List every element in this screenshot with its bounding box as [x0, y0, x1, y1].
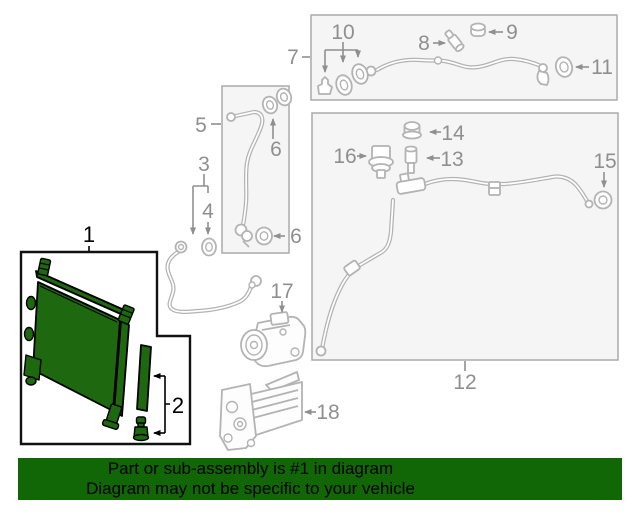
- pipe-end-fitting-icon: [317, 347, 326, 356]
- pipe-end-fitting-icon: [586, 201, 593, 208]
- info-banner: Part or sub-assembly is #1 in diagram Di…: [18, 458, 622, 500]
- compressor-port-icon: [270, 312, 288, 325]
- callout-7-label: 7: [287, 46, 299, 69]
- info-banner-text: Part or sub-assembly is #1 in diagram Di…: [18, 459, 483, 499]
- condenser-mount-foot: [26, 377, 36, 385]
- condenser-mount-bracket: [24, 355, 41, 380]
- assembly-box-7: [311, 15, 617, 100]
- callout-1-label: 1: [83, 222, 95, 247]
- hose-elbow-icon: [242, 231, 252, 241]
- callout-4-label: 4: [202, 200, 214, 223]
- callout-13-label: 13: [440, 148, 463, 171]
- tube-end-fitting-icon: [249, 282, 255, 288]
- callout-12-label: 12: [453, 371, 476, 394]
- bracket-hole: [238, 422, 243, 427]
- bracket-18-art: [220, 372, 302, 450]
- bracket-hole: [224, 434, 232, 442]
- callout-18-label: 18: [316, 401, 339, 424]
- compressor-boss: [291, 348, 299, 356]
- assembly-box-12: [312, 113, 618, 360]
- banner-line1: Part or sub-assembly is #1 in diagram: [18, 459, 483, 479]
- callout-2-label: 2: [172, 393, 184, 418]
- valve-core-icon: [406, 147, 417, 174]
- condenser-tab: [25, 328, 34, 341]
- compressor-17-art: [241, 312, 305, 366]
- condenser-tab: [27, 297, 36, 310]
- hose-bracket-lug-icon: [537, 71, 548, 85]
- callout-10-label: 10: [331, 21, 354, 44]
- callout-9-label: 9: [506, 21, 518, 44]
- callout-11-label: 11: [591, 56, 613, 79]
- callout-14-label: 14: [441, 122, 465, 145]
- parts-diagram: 1 2 3 4 5 6 6 7 8 9 10 11 12 13 14 15 16…: [0, 0, 640, 512]
- o-ring-icon: [595, 192, 612, 209]
- tube-path-core: [167, 252, 259, 312]
- pulley-hub: [251, 342, 258, 349]
- hose-end-fitting-icon: [227, 113, 235, 121]
- hose-clamp-icon: [435, 57, 442, 64]
- o-ring-icon: [202, 239, 216, 256]
- pipe-clip-icon: [489, 182, 500, 195]
- callout-6-label: 6: [290, 225, 302, 248]
- tube-end-opening: [179, 245, 184, 250]
- callout-8-label: 8: [418, 32, 430, 55]
- callout-16-label: 16: [333, 145, 356, 168]
- tube-path: [167, 252, 259, 312]
- cap-icon: [471, 24, 485, 37]
- banner-line2: Diagram may not be specific to your vehi…: [18, 479, 483, 499]
- service-cap-icon: [403, 122, 421, 139]
- callout-3-label: 3: [198, 153, 210, 176]
- callout-15-label: 15: [593, 150, 616, 173]
- callout-17-label: 17: [270, 280, 293, 303]
- bracket-hole: [227, 402, 238, 413]
- callout-6-label: 6: [270, 138, 282, 161]
- callout-5-label: 5: [195, 114, 207, 137]
- bracket-foot: [248, 440, 255, 447]
- o-ring-icon: [256, 228, 272, 245]
- diagram-canvas: 1 2 3 4 5 6 6 7 8 9 10 11 12 13 14 15 16…: [0, 0, 640, 512]
- compressor-boss: [280, 329, 286, 335]
